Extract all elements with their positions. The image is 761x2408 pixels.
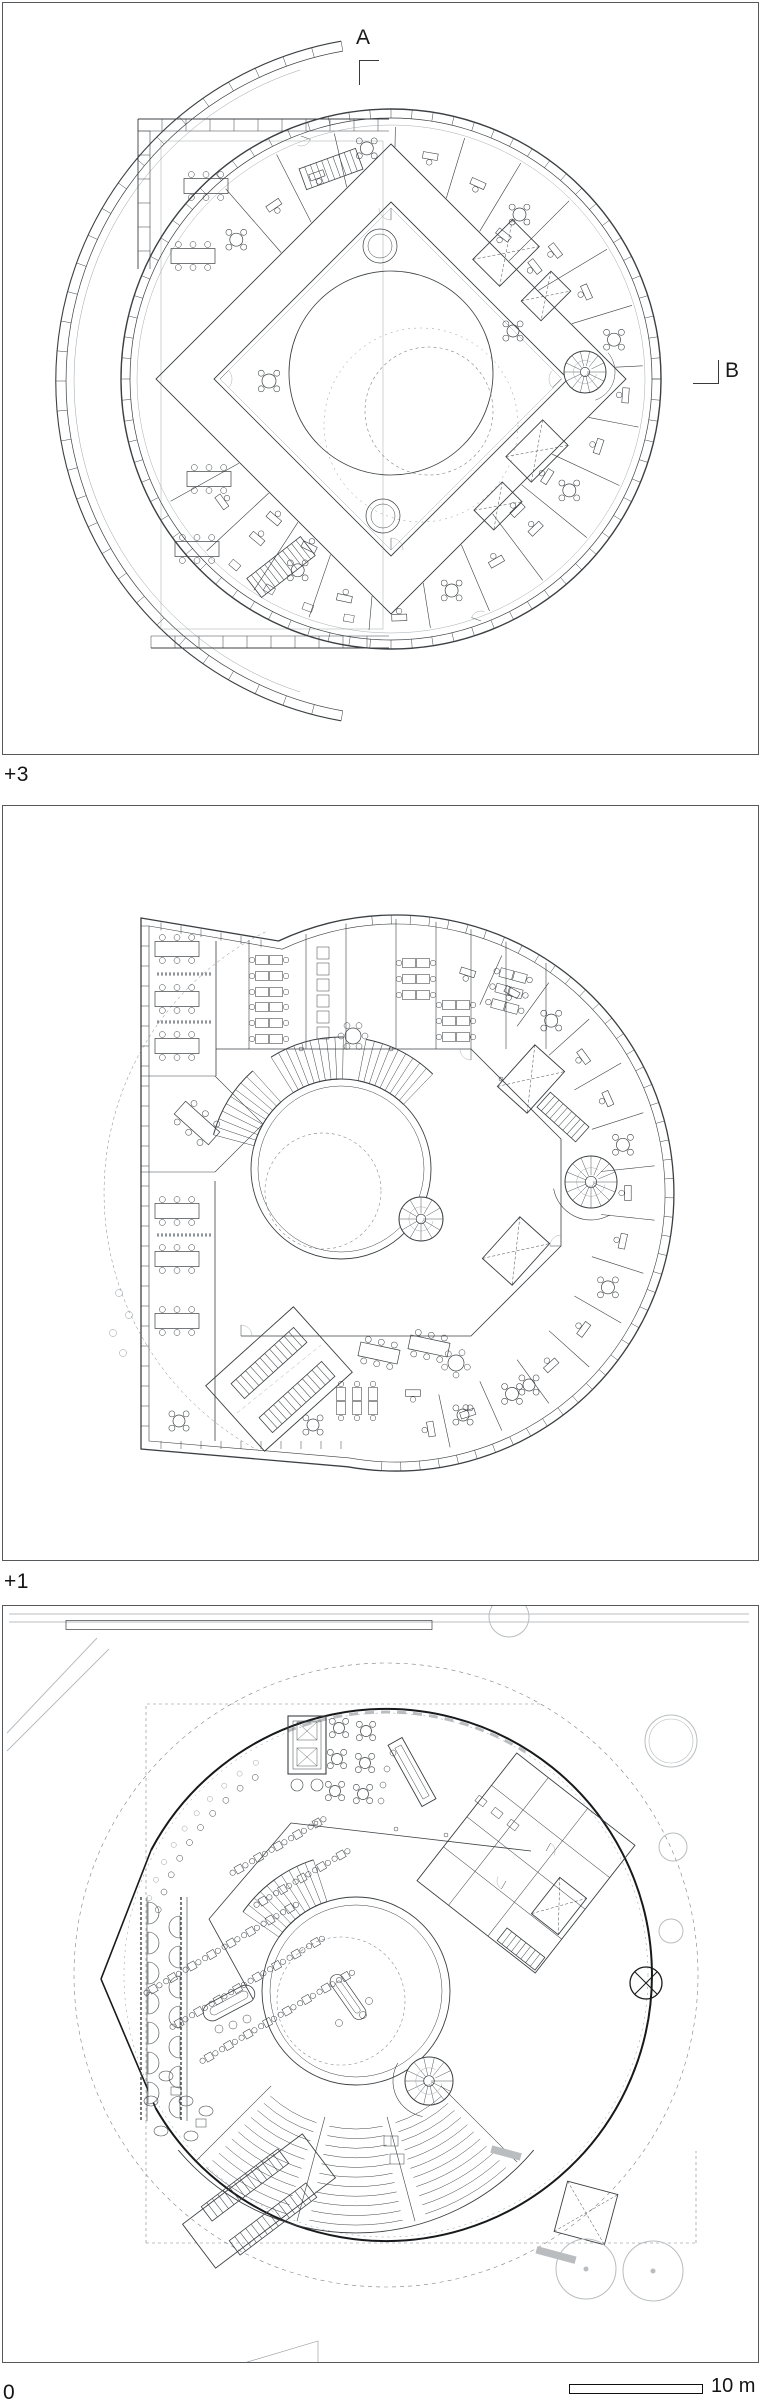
section-marker-a-icon	[359, 60, 379, 85]
level-label-plus1: +1	[4, 1570, 29, 1594]
level-label-plus3: +3	[4, 763, 29, 787]
site-plan-level0-drawing	[3, 1606, 758, 2362]
panel-level-0	[2, 1605, 759, 2363]
level-label-0: 0	[3, 2381, 15, 2405]
section-marker-a-label: A	[356, 26, 370, 50]
panel-level-plus1	[2, 805, 759, 1561]
floor-plan-plus3-drawing	[3, 3, 758, 754]
section-marker-b-icon	[693, 360, 719, 384]
panel-level-plus3	[2, 2, 759, 755]
architectural-plan-sheet: A B +3 +1 0 10 m	[0, 0, 761, 2408]
scale-bar-label: 10 m	[711, 2375, 755, 2398]
scale-bar	[569, 2384, 703, 2394]
floor-plan-plus1-drawing	[3, 806, 758, 1560]
section-marker-b-label: B	[725, 359, 739, 383]
